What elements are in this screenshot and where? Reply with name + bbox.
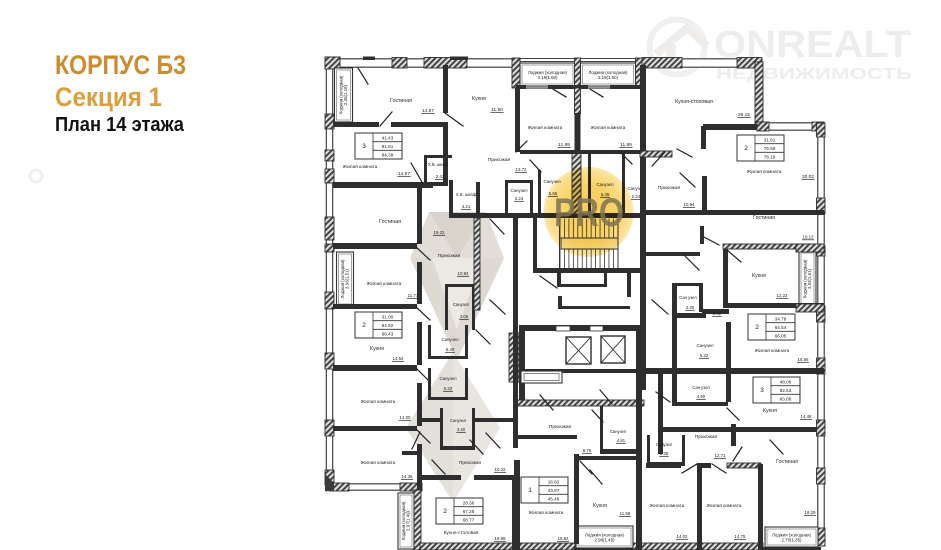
- svg-text:43.97: 43.97: [548, 488, 560, 493]
- svg-text:31.00: 31.00: [382, 314, 394, 319]
- svg-text:8.92: 8.92: [713, 311, 722, 316]
- svg-text:Кухня: Кухня: [593, 503, 607, 509]
- svg-text:14.02: 14.02: [677, 534, 689, 539]
- svg-text:66.05: 66.05: [775, 334, 787, 339]
- svg-text:2.98(1.49): 2.98(1.49): [594, 537, 615, 542]
- svg-text:Санузел: Санузел: [610, 429, 627, 434]
- svg-text:48.06: 48.06: [780, 379, 792, 384]
- svg-text:Санузел: Санузел: [453, 302, 470, 307]
- svg-text:Санузел: Санузел: [696, 343, 714, 348]
- svg-text:66.43: 66.43: [382, 332, 394, 337]
- svg-text:Жилая комната: Жилая комната: [361, 460, 396, 466]
- svg-text:Жилая комната: Жилая комната: [528, 125, 563, 131]
- svg-text:14.54: 14.54: [393, 356, 405, 361]
- svg-text:84.39: 84.39: [382, 153, 394, 158]
- svg-text:Гостиная: Гостиная: [379, 219, 401, 225]
- svg-text:3.06: 3.06: [460, 314, 469, 319]
- svg-text:18.82: 18.82: [548, 479, 560, 484]
- svg-text:Санузел: Санузел: [510, 188, 528, 193]
- svg-text:3.19(1.60): 3.19(1.60): [598, 75, 619, 80]
- svg-text:Сан узел: Сан узел: [692, 385, 710, 390]
- svg-text:28.36: 28.36: [463, 500, 475, 505]
- svg-text:Кухня: Кухня: [472, 96, 486, 102]
- svg-text:78.19: 78.19: [764, 155, 776, 160]
- svg-text:14.48: 14.48: [801, 414, 813, 419]
- svg-text:Жилая комната: Жилая комната: [650, 503, 685, 509]
- svg-text:2: 2: [755, 324, 759, 331]
- svg-text:2: 2: [744, 145, 748, 152]
- svg-text:4.90: 4.90: [697, 394, 706, 399]
- svg-text:83.88: 83.88: [780, 397, 792, 402]
- svg-text:15.65: 15.65: [798, 357, 810, 362]
- svg-text:5.32: 5.32: [700, 353, 709, 358]
- svg-text:31.91: 31.91: [764, 137, 776, 142]
- svg-text:11.71: 11.71: [408, 293, 419, 298]
- svg-text:12.22: 12.22: [777, 293, 789, 298]
- svg-text:19.13: 19.13: [803, 235, 815, 240]
- svg-text:3.40: 3.40: [457, 427, 466, 432]
- svg-text:11.58: 11.58: [620, 511, 631, 516]
- svg-text:13.72: 13.72: [516, 167, 528, 172]
- svg-text:План 14 этажа: План 14 этажа: [55, 113, 185, 136]
- svg-text:10.22: 10.22: [495, 467, 507, 472]
- svg-text:4.81: 4.81: [617, 438, 626, 443]
- svg-text:3.93(1.51): 3.93(1.51): [807, 268, 812, 289]
- svg-text:2.97(1.49): 2.97(1.49): [406, 510, 411, 531]
- svg-text:2.42: 2.42: [436, 174, 445, 179]
- svg-text:2.38: 2.38: [660, 451, 669, 456]
- svg-text:64.54: 64.54: [775, 325, 787, 330]
- svg-text:Жилая комната: Жилая комната: [755, 348, 790, 354]
- svg-text:14.00: 14.00: [400, 415, 412, 420]
- svg-text:14.75: 14.75: [735, 534, 747, 539]
- svg-text:КОРПУС Б3: КОРПУС Б3: [55, 50, 186, 80]
- svg-text:19.29: 19.29: [805, 510, 817, 515]
- svg-text:Санузел: Санузел: [441, 337, 459, 342]
- svg-text:4.21: 4.21: [462, 204, 471, 209]
- svg-text:10.94: 10.94: [684, 202, 696, 207]
- svg-text:5.32: 5.32: [444, 386, 453, 391]
- svg-text:2: 2: [443, 508, 447, 515]
- svg-text:Х.В. шкаф: Х.В. шкаф: [428, 162, 449, 167]
- svg-text:19.22: 19.22: [434, 230, 446, 235]
- svg-text:81.61: 81.61: [382, 144, 394, 149]
- svg-text:3.93(1.51): 3.93(1.51): [345, 268, 350, 289]
- svg-text:76.59: 76.59: [764, 146, 776, 151]
- svg-text:41.43: 41.43: [382, 135, 394, 140]
- svg-text:2.35(1.18): 2.35(1.18): [343, 84, 348, 105]
- svg-text:Жилая комната: Жилая комната: [707, 503, 742, 509]
- svg-text:2.24: 2.24: [515, 196, 524, 201]
- svg-text:Сан узел: Сан узел: [679, 295, 697, 300]
- svg-text:64.92: 64.92: [382, 323, 394, 328]
- svg-text:2.24: 2.24: [632, 194, 641, 199]
- svg-text:34.78: 34.78: [775, 316, 787, 321]
- svg-text:Гостиная: Гостиная: [390, 98, 412, 104]
- svg-text:3: 3: [362, 143, 366, 150]
- svg-text:Гостиная: Гостиная: [776, 459, 798, 465]
- svg-text:Санузел: Санузел: [656, 442, 673, 447]
- svg-text:Кухня: Кухня: [370, 346, 384, 352]
- svg-text:2.30: 2.30: [686, 305, 695, 310]
- svg-text:Жилая комната: Жилая комната: [591, 125, 626, 131]
- svg-text:Секция 1: Секция 1: [55, 82, 162, 112]
- svg-text:12.71: 12.71: [715, 453, 727, 458]
- svg-text:Жилая комната: Жилая комната: [343, 164, 378, 170]
- svg-text:Жилая комната: Жилая комната: [367, 281, 402, 287]
- svg-text:67.28: 67.28: [463, 509, 475, 514]
- svg-text:18.82: 18.82: [558, 536, 570, 541]
- svg-text:НЕДВИЖИМОСТЬ: НЕДВИЖИМОСТЬ: [716, 66, 912, 83]
- svg-text:2: 2: [362, 322, 366, 329]
- svg-text:Санузел: Санузел: [439, 376, 457, 381]
- svg-text:Жилая комната: Жилая комната: [361, 399, 396, 405]
- svg-text:Прихожая: Прихожая: [488, 157, 511, 163]
- svg-text:14.36: 14.36: [402, 474, 414, 479]
- svg-text:Прихожая: Прихожая: [658, 185, 681, 191]
- svg-text:2.70(1.35): 2.70(1.35): [781, 537, 802, 542]
- svg-text:Кухня-столовая: Кухня-столовая: [675, 99, 713, 105]
- svg-text:82.53: 82.53: [780, 388, 792, 393]
- svg-text:Кухня-столовая: Кухня-столовая: [444, 530, 479, 536]
- svg-text:8.76: 8.76: [583, 448, 592, 453]
- svg-text:Кухня: Кухня: [752, 273, 766, 279]
- svg-text:3: 3: [760, 387, 764, 394]
- svg-text:68.77: 68.77: [463, 518, 475, 523]
- svg-text:3.19(1.60): 3.19(1.60): [537, 75, 558, 80]
- svg-text:Гостиная: Гостиная: [753, 215, 775, 221]
- svg-text:Прихожая: Прихожая: [438, 253, 461, 259]
- svg-text:1: 1: [528, 487, 532, 494]
- svg-text:PRO: PRO: [554, 191, 624, 235]
- svg-text:Санузел: Санузел: [450, 418, 467, 423]
- svg-text:19.98: 19.98: [495, 536, 507, 541]
- svg-text:Жилая комната: Жилая комната: [747, 169, 782, 175]
- svg-text:Х.В. шкаф: Х.В. шкаф: [456, 192, 477, 197]
- svg-text:Прихожая: Прихожая: [695, 434, 718, 440]
- svg-text:10.84: 10.84: [458, 271, 470, 276]
- svg-text:Кухня: Кухня: [763, 408, 777, 414]
- svg-text:Прихожая: Прихожая: [549, 424, 572, 430]
- svg-text:Прихожая: Прихожая: [459, 460, 482, 466]
- svg-text:Жилая комната: Жилая комната: [529, 510, 564, 516]
- svg-text:45.46: 45.46: [548, 497, 560, 502]
- svg-text:5.48: 5.48: [446, 347, 455, 352]
